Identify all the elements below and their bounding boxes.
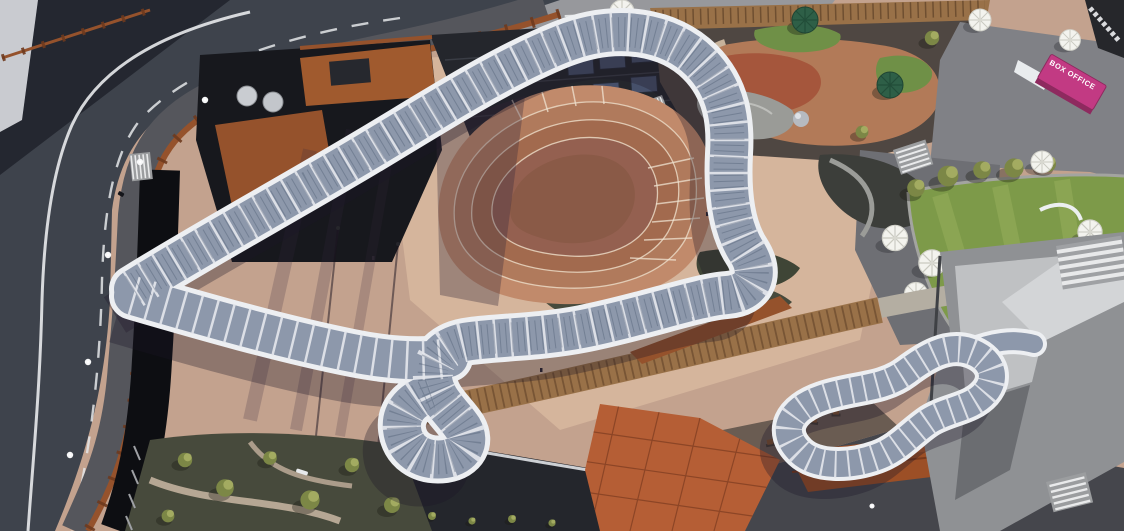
dome-highlight [795, 113, 801, 119]
plant-room [329, 58, 371, 85]
pedestrian [372, 256, 375, 260]
rooftop-tank [263, 92, 283, 112]
rooftop-tank [237, 86, 257, 106]
aerial-plaza-photo: BOX OFFICE [0, 0, 1124, 531]
light-mast [396, 242, 400, 246]
aerial-plaza-scene: BOX OFFICE [0, 0, 1124, 531]
silver-dome [793, 111, 809, 127]
light-mast [336, 226, 340, 230]
